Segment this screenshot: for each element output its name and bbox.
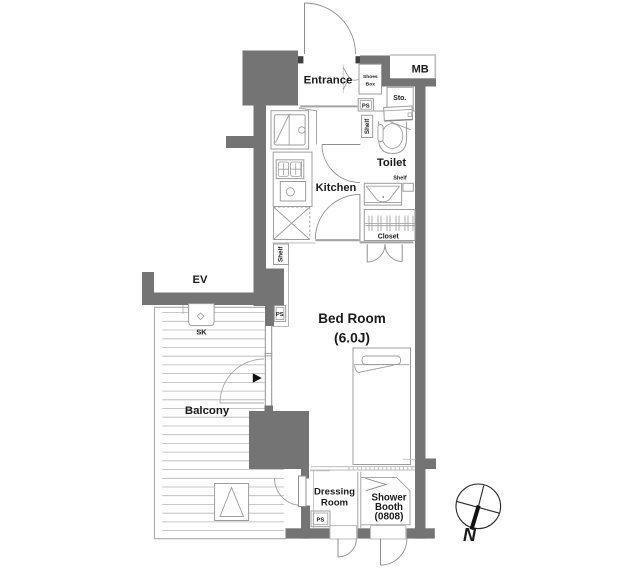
- svg-text:Toilet: Toilet: [377, 157, 407, 169]
- svg-text:Dressing: Dressing: [314, 487, 355, 498]
- svg-text:Entrance: Entrance: [304, 75, 353, 87]
- svg-text:(6.0J): (6.0J): [334, 330, 370, 345]
- svg-text:PS: PS: [276, 312, 284, 318]
- svg-text:Shoes: Shoes: [363, 74, 378, 80]
- svg-text:EV: EV: [193, 274, 208, 286]
- svg-text:Kitchen: Kitchen: [316, 182, 357, 194]
- svg-text:PS: PS: [362, 103, 370, 109]
- svg-text:PS: PS: [317, 518, 325, 524]
- svg-text:Balcony: Balcony: [185, 405, 230, 417]
- svg-text:N: N: [463, 525, 477, 545]
- svg-text:(0808): (0808): [375, 511, 404, 522]
- svg-text:Shelf: Shelf: [278, 246, 285, 262]
- svg-text:Room: Room: [321, 497, 348, 508]
- svg-text:Box: Box: [366, 82, 376, 88]
- svg-text:MB: MB: [412, 63, 429, 75]
- svg-text:Closet: Closet: [378, 233, 400, 240]
- svg-text:Shelf: Shelf: [393, 175, 407, 181]
- svg-text:Bed Room: Bed Room: [318, 311, 386, 326]
- svg-text:Sto.: Sto.: [393, 95, 406, 102]
- svg-text:SK: SK: [196, 328, 207, 337]
- svg-text:Shelf: Shelf: [364, 118, 371, 134]
